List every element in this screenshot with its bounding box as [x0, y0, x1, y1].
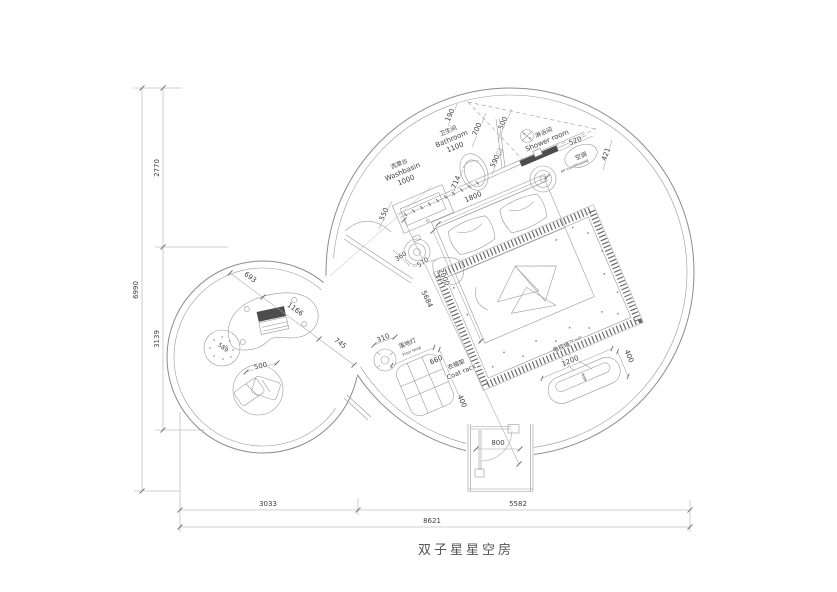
dim-width-left: 3033: [259, 500, 277, 508]
corridor-floor: [300, 229, 386, 416]
floor-plan-canvas: 800: [0, 0, 837, 592]
entrance-vestibule: 800: [466, 424, 534, 492]
dim-cushion: 500: [253, 361, 268, 372]
dim-pouf: 589: [216, 342, 230, 355]
floor-plan-page: 800: [0, 0, 837, 592]
main-room-walls: [326, 88, 694, 456]
dim-tv-depth: 400: [623, 348, 636, 363]
dim-lounge-seg2: 1166: [286, 301, 306, 318]
dim-stool-b: 570: [415, 256, 430, 270]
shower-label: 淋浴间 Shower room: [521, 120, 571, 154]
dim-entry-door: 800: [491, 439, 504, 447]
bathroom-label: 卫生间 Bathroom 1100: [431, 120, 473, 157]
toilet: [455, 149, 494, 194]
tv-wall: 电视机: [539, 344, 630, 410]
dim-bed-head: 1800: [463, 190, 483, 204]
coat-rack: [389, 343, 463, 421]
kidney-table: [220, 282, 324, 358]
laptop: [254, 303, 291, 337]
washbasin-label: 洗漱台 Washbasin 1000: [380, 153, 425, 192]
dim-overall-height: 6990: [132, 281, 140, 299]
dim-height-bottom: 3139: [153, 330, 161, 348]
dim-room-diag: 5684: [419, 289, 434, 309]
dim-height-top: 2770: [153, 159, 161, 177]
dim-ac-side: 421: [600, 147, 612, 162]
dim-lamp: 310: [375, 332, 390, 345]
dim-toilet-side: 714: [450, 174, 463, 190]
page-title: 双子星星空房: [418, 542, 514, 558]
dim-lounge-seg1: 693: [242, 270, 258, 284]
bed: [416, 174, 597, 350]
dim-overall-width: 8621: [423, 517, 441, 525]
dim-shower-edge: 500: [497, 115, 510, 130]
dim-shower-glass: 520: [568, 135, 583, 147]
dim-width-right: 5582: [509, 500, 527, 508]
left-dim-lines: [134, 86, 228, 494]
tv-unit-label: 电视机: [580, 372, 589, 384]
dim-stool-a: 360: [393, 250, 408, 264]
bottom-dim-lines: [178, 412, 693, 532]
floor-drain-icon: [521, 130, 534, 143]
tv-wall-label-en: TV wall: [567, 335, 582, 345]
dim-rack-depth: 400: [456, 393, 469, 408]
